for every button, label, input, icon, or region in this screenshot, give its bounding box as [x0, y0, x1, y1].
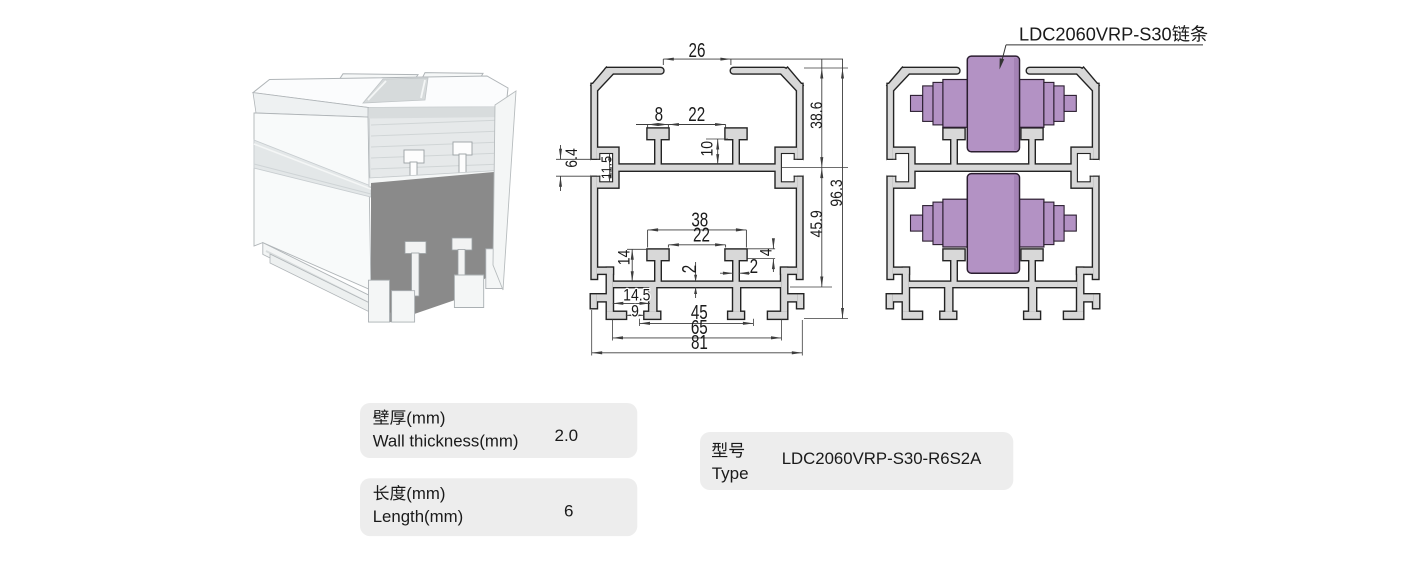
svg-text:2.0: 2.0	[555, 426, 579, 445]
svg-text:LDC2060VRP-S30: LDC2060VRP-S30	[1019, 24, 1172, 44]
svg-text:6: 6	[564, 501, 573, 520]
svg-text:6.4: 6.4	[563, 148, 581, 168]
svg-text:2: 2	[678, 265, 701, 273]
svg-text:45.9: 45.9	[808, 210, 826, 237]
svg-text:Wall thickness(mm): Wall thickness(mm)	[373, 431, 519, 450]
svg-text:81: 81	[691, 331, 708, 354]
svg-text:LDC2060VRP-S30-R6S2A: LDC2060VRP-S30-R6S2A	[782, 449, 982, 468]
svg-text:9: 9	[631, 302, 639, 320]
svg-text:96.3: 96.3	[828, 179, 846, 206]
svg-text:26: 26	[689, 39, 706, 62]
svg-text:8: 8	[655, 103, 664, 126]
svg-text:11.5: 11.5	[598, 156, 614, 179]
svg-text:22: 22	[693, 224, 710, 247]
svg-text:2: 2	[750, 255, 758, 278]
svg-text:Length(mm): Length(mm)	[373, 507, 463, 526]
svg-text:Type: Type	[712, 464, 749, 483]
svg-text:4: 4	[757, 248, 775, 256]
svg-text:38.6: 38.6	[808, 102, 826, 129]
svg-text:(mm): (mm)	[406, 409, 445, 428]
svg-text:22: 22	[688, 103, 705, 126]
svg-text:(mm): (mm)	[406, 484, 445, 503]
svg-text:10: 10	[698, 141, 716, 157]
svg-text:14: 14	[615, 249, 633, 265]
